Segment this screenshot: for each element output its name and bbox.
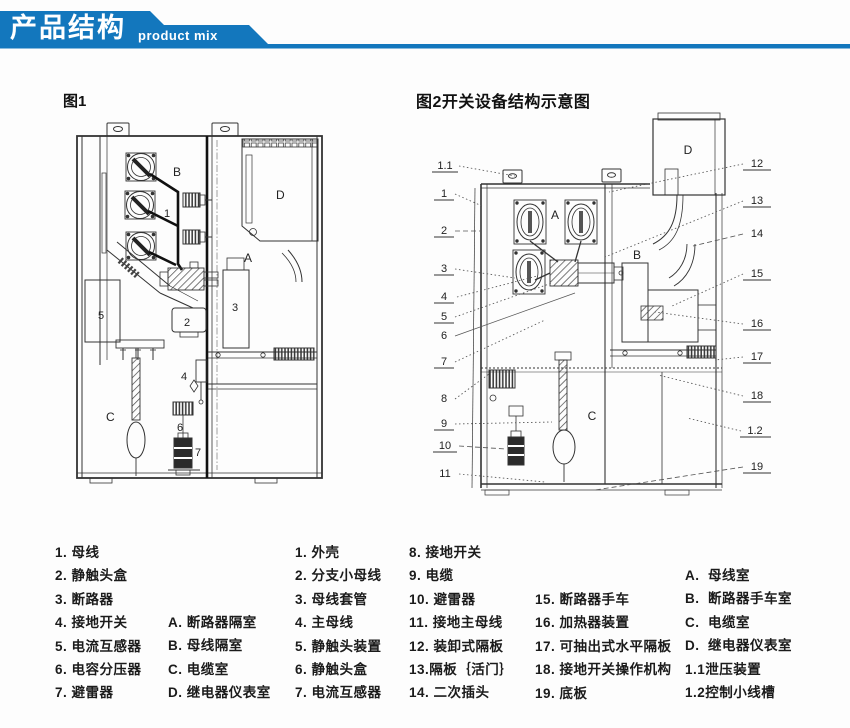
legend-item-text: 7. 电流互感器 — [295, 685, 382, 700]
header-banner — [0, 0, 850, 50]
legend-column-fig2-letters: A. 母线室 B. 断路器手车室 C. 电缆室 D. 继电器仪表室 1.1泄压装… — [685, 564, 792, 704]
legend-item: A. 母线室 — [685, 564, 792, 587]
fig1-label-1: 1 — [164, 208, 170, 220]
legend-item-text: A. 母线室 — [685, 568, 750, 583]
legend-item: 19. 底板 — [535, 682, 672, 705]
legend-item: 6. 静触头盒 — [295, 658, 382, 681]
fig1-label-6: 6 — [177, 422, 183, 434]
legend-item: 18. 接地开关操作机构 — [535, 658, 672, 681]
legend-item: 5. 静触头装置 — [295, 635, 382, 658]
fig2-label-1-1: 1.1 — [437, 160, 452, 172]
fig2-label-12: 12 — [751, 158, 763, 170]
fig2-label-C: C — [588, 409, 597, 423]
legend-item: 1. 外壳 — [295, 541, 382, 564]
legend-item-text: 18. 接地开关操作机构 — [535, 662, 672, 677]
fig2-label-5: 5 — [441, 311, 447, 323]
fig2-label-11: 11 — [439, 468, 450, 480]
legend-item: C. 电缆室 — [168, 658, 271, 681]
fig2-label-1: 1 — [441, 188, 447, 200]
legend-item-text: 2. 静触头盒 — [55, 568, 128, 583]
fig2-label-A: A — [551, 208, 559, 222]
legend-item: B. 母线隔室 — [168, 634, 271, 657]
legend-item-text: 8. 接地开关 — [409, 545, 482, 560]
legend-item: 1.2控制小线槽 — [685, 681, 792, 704]
fig2-label-1-2: 1.2 — [747, 425, 762, 437]
legend-item-text: 4. 接地开关 — [55, 615, 128, 630]
fig1-label-C: C — [106, 410, 115, 424]
legend-item: 5. 电流互感器 — [55, 635, 142, 658]
legend-item: 1.1泄压装置 — [685, 658, 792, 681]
figure2-title: 图2开关设备结构示意图 — [416, 88, 590, 112]
legend-item-text: D. 继电器仪表室 — [685, 638, 792, 653]
legend-item-text: B. 断路器手车室 — [685, 591, 792, 606]
legend-item: A. 断路器隔室 — [168, 611, 271, 634]
legend-item-text: 7. 避雷器 — [55, 685, 114, 700]
legend-item-text: 17. 可抽出式水平隔板 — [535, 639, 672, 654]
fig1-label-2: 2 — [184, 317, 190, 329]
legend-item: 4. 主母线 — [295, 611, 382, 634]
legend-item-text: C. 电缆室 — [168, 662, 229, 677]
fig2-label-8: 8 — [441, 393, 447, 405]
legend-item-text: 3. 母线套管 — [295, 592, 368, 607]
fig1-label-3: 3 — [232, 302, 238, 314]
legend-item-text: 4. 主母线 — [295, 615, 354, 630]
legend-item: 8. 接地开关 — [409, 541, 513, 564]
legend-item-text: 5. 静触头装置 — [295, 639, 382, 654]
fig2-label-6: 6 — [441, 330, 447, 342]
legend-item-text: 2. 分支小母线 — [295, 568, 382, 583]
legend-item-text: 1.2控制小线槽 — [685, 685, 775, 700]
page-subtitle: product mix — [138, 28, 218, 43]
legend-column-fig2-items-3: 15. 断路器手车 16. 加热器装置 17. 可抽出式水平隔板 18. 接地开… — [535, 588, 672, 705]
legend-item-text: 12. 装卸式隔板 — [409, 639, 504, 654]
legend-item: 12. 装卸式隔板 — [409, 635, 513, 658]
fig2-label-13: 13 — [751, 195, 763, 207]
fig1-label-D: D — [276, 188, 285, 202]
legend-item-text: 1.1泄压装置 — [685, 662, 761, 677]
legend-column-fig1-numbers: 1. 母线 2. 静触头盒 3. 断路器 4. 接地开关 5. 电流互感器 6.… — [55, 541, 142, 705]
legend-item-text: 14. 二次插头 — [409, 685, 490, 700]
legend-item: 17. 可抽出式水平隔板 — [535, 635, 672, 658]
legend-item-text: 6. 静触头盒 — [295, 662, 368, 677]
legend-item: 7. 电流互感器 — [295, 681, 382, 704]
legend-item-text: 1. 外壳 — [295, 545, 340, 560]
legend-item: 9. 电缆 — [409, 564, 513, 587]
legend-item-text: A. 断路器隔室 — [168, 615, 257, 630]
legend-item: 3. 母线套管 — [295, 588, 382, 611]
fig1-components — [85, 193, 249, 476]
fig1-label-4: 4 — [181, 371, 187, 383]
figure1-drawing: B 1 D A 3 2 5 4 C 6 7 — [60, 110, 345, 510]
legend-item-text: 9. 电缆 — [409, 568, 454, 583]
legend-item-text: 5. 电流互感器 — [55, 639, 142, 654]
fig2-label-7: 7 — [441, 356, 447, 368]
page-title: 产品结构 — [10, 13, 126, 43]
fig2-label-16: 16 — [751, 318, 763, 330]
legend-item-text: C. 电缆室 — [685, 615, 750, 630]
fig2-label-underlines — [432, 170, 771, 473]
legend-item: 4. 接地开关 — [55, 611, 142, 634]
legend-item: 2. 分支小母线 — [295, 564, 382, 587]
fig2-leader-lines — [455, 164, 743, 490]
fig2-label-4: 4 — [441, 291, 447, 303]
fig1-label-A: A — [244, 251, 252, 265]
legend-column-fig2-items-2: 8. 接地开关 9. 电缆 10. 避雷器 11. 接地主母线 12. 装卸式隔… — [409, 541, 513, 705]
legend-item: B. 断路器手车室 — [685, 587, 792, 610]
figure1-title: 图1 — [63, 90, 86, 111]
legend-item-text: 1. 母线 — [55, 545, 100, 560]
legend-item: 7. 避雷器 — [55, 681, 142, 704]
legend-item: C. 电缆室 — [685, 611, 792, 634]
fig2-components — [489, 200, 716, 482]
fig2-label-15: 15 — [751, 268, 763, 280]
fig1-cabinet — [77, 123, 322, 483]
fig2-label-B: B — [633, 248, 641, 262]
fig2-label-14: 14 — [751, 228, 763, 240]
legend-item: 6. 电容分压器 — [55, 658, 142, 681]
legend-column-fig2-items-1: 1. 外壳 2. 分支小母线 3. 母线套管 4. 主母线 5. 静触头装置 6… — [295, 541, 382, 705]
legend-column-fig1-letters: A. 断路器隔室 B. 母线隔室 C. 电缆室 D. 继电器仪表室 — [168, 611, 271, 705]
legend-item-text: 3. 断路器 — [55, 592, 114, 607]
fig2-label-3: 3 — [441, 263, 447, 275]
fig2-label-18: 18 — [751, 390, 763, 402]
legend-item: D. 继电器仪表室 — [685, 634, 792, 657]
fig1-label-5: 5 — [98, 310, 104, 322]
figure2-drawing: 1.1 1 2 3 4 5 6 7 8 9 10 11 12 13 14 15 … — [425, 110, 775, 502]
legend-item-text: B. 母线隔室 — [168, 638, 243, 653]
fig2-labels: 1.1 1 2 3 4 5 6 7 8 9 10 11 12 13 14 15 … — [437, 143, 763, 480]
legend-item-text: 11. 接地主母线 — [409, 615, 503, 630]
legend-item-text: 15. 断路器手车 — [535, 592, 630, 607]
legend-item: D. 继电器仪表室 — [168, 681, 271, 704]
legend-item-text: 19. 底板 — [535, 686, 588, 701]
legend-item: 11. 接地主母线 — [409, 611, 513, 634]
legend-item-text: 6. 电容分压器 — [55, 662, 142, 677]
legend-item: 2. 静触头盒 — [55, 564, 142, 587]
fig1-label-B: B — [173, 165, 181, 179]
legend-item-text: 10. 避雷器 — [409, 592, 476, 607]
legend-item: 10. 避雷器 — [409, 588, 513, 611]
fig2-label-9: 9 — [441, 418, 447, 430]
legend-item: 13.隔板｛活门｝ — [409, 658, 513, 681]
legend-item: 15. 断路器手车 — [535, 588, 672, 611]
fig2-label-10: 10 — [439, 440, 451, 452]
fig2-label-2: 2 — [441, 225, 447, 237]
legend-item: 3. 断路器 — [55, 588, 142, 611]
fig2-label-19: 19 — [751, 461, 763, 473]
fig1-label-7: 7 — [195, 447, 201, 459]
legend-item: 16. 加热器装置 — [535, 611, 672, 634]
fig2-label-17: 17 — [751, 351, 763, 363]
legend-item-text: 13.隔板｛活门｝ — [409, 662, 513, 677]
legend-item-text: 16. 加热器装置 — [535, 615, 630, 630]
legend-item: 1. 母线 — [55, 541, 142, 564]
fig2-label-D: D — [684, 143, 693, 157]
legend-item: 14. 二次插头 — [409, 681, 513, 704]
legend-item-text: D. 继电器仪表室 — [168, 685, 271, 700]
